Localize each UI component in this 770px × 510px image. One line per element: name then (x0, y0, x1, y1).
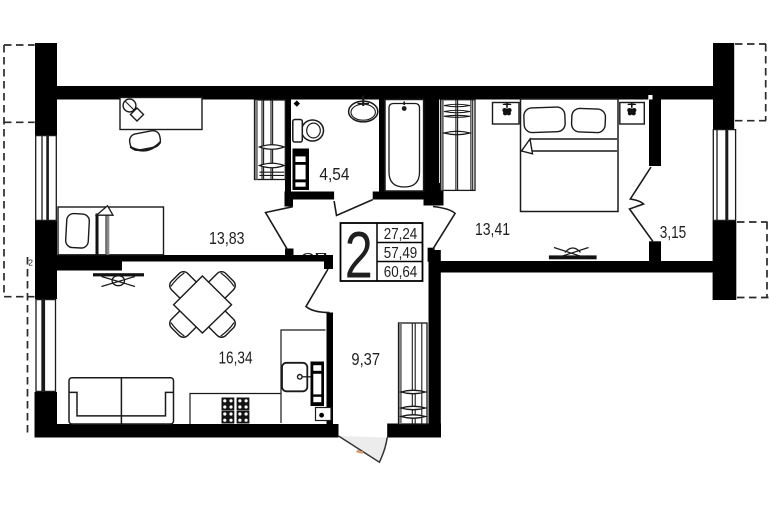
svg-text:2: 2 (28, 258, 33, 268)
svg-text:9,37: 9,37 (351, 349, 380, 369)
svg-text:57,49: 57,49 (384, 245, 418, 262)
svg-text:27,24: 27,24 (384, 226, 418, 243)
svg-text:3,15: 3,15 (660, 222, 687, 242)
svg-text:13,41: 13,41 (475, 219, 510, 239)
svg-text:16,34: 16,34 (219, 348, 253, 368)
svg-text:60,64: 60,64 (384, 264, 418, 281)
svg-text:2: 2 (345, 218, 373, 292)
svg-text:13,83: 13,83 (209, 228, 245, 248)
svg-text:4,54: 4,54 (319, 164, 349, 184)
